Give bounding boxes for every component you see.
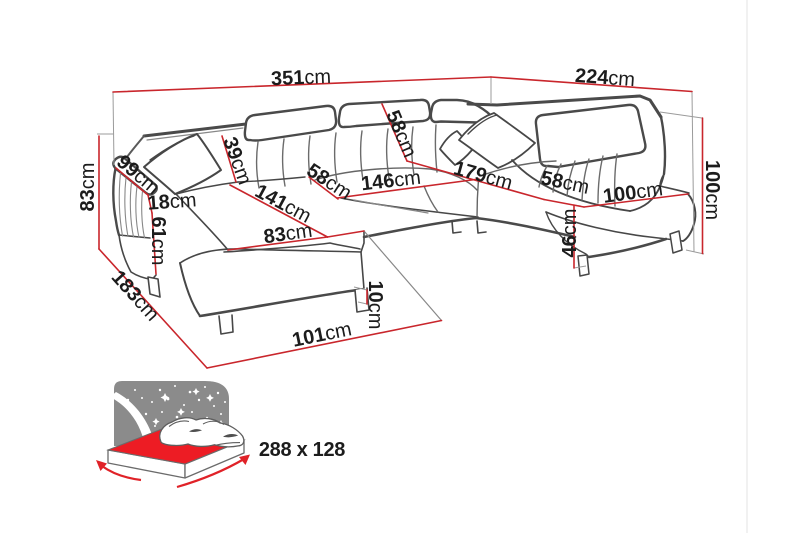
svg-text:58cm: 58cm bbox=[539, 167, 591, 199]
svg-text:10cm: 10cm bbox=[364, 281, 386, 330]
svg-text:224cm: 224cm bbox=[574, 65, 635, 91]
svg-text:58cm: 58cm bbox=[302, 159, 355, 204]
svg-text:100cm: 100cm bbox=[701, 160, 723, 220]
svg-text:101cm: 101cm bbox=[290, 318, 353, 352]
svg-text:39cm: 39cm bbox=[218, 134, 255, 187]
svg-text:100cm: 100cm bbox=[602, 178, 664, 208]
svg-text:46cm: 46cm bbox=[559, 209, 581, 258]
svg-text:351cm: 351cm bbox=[271, 66, 332, 90]
svg-text:61cm: 61cm bbox=[147, 217, 169, 266]
svg-text:18cm: 18cm bbox=[147, 189, 197, 214]
svg-text:288 x 128: 288 x 128 bbox=[259, 439, 345, 461]
svg-text:83cm: 83cm bbox=[77, 163, 99, 212]
svg-text:146cm: 146cm bbox=[360, 167, 422, 196]
svg-text:83cm: 83cm bbox=[262, 220, 314, 249]
